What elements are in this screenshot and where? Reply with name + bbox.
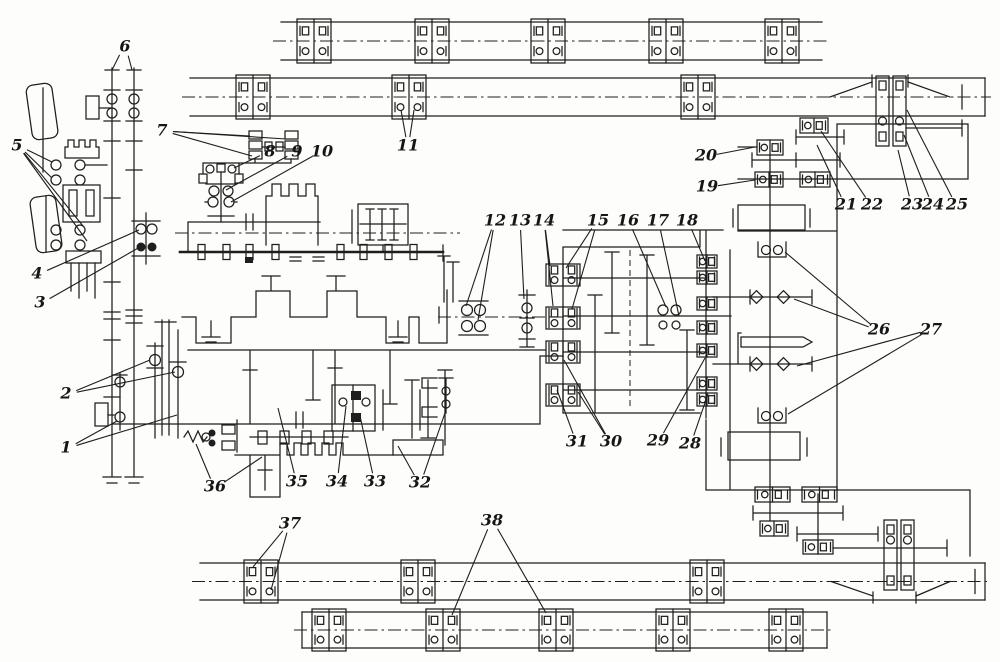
- gear-3: [137, 243, 146, 252]
- part-number: 33: [364, 472, 386, 491]
- part-number: 7: [156, 121, 167, 140]
- part-number: 8: [263, 142, 275, 161]
- part-number: 3: [34, 293, 45, 312]
- drive-unit: [86, 96, 99, 119]
- pass-through-bearing-column: [884, 520, 914, 590]
- part-number: 23: [900, 195, 923, 214]
- ball-nut-lower: [728, 432, 800, 460]
- part-label-20: 20: [694, 146, 755, 165]
- part-number: 4: [31, 264, 42, 283]
- part-number: 12: [484, 211, 506, 230]
- part-number: 6: [119, 37, 130, 56]
- bearing-block: [803, 540, 833, 554]
- scanned-kinematic-diagram-page: 1234567891011121314151617181920212223242…: [0, 0, 1000, 662]
- part-number: 21: [834, 195, 857, 214]
- part-number: 13: [509, 211, 531, 230]
- bearing-block: [802, 487, 837, 502]
- spindle-gears: [198, 245, 417, 264]
- part-label-12: 12: [466, 211, 506, 321]
- part-label-2: 2: [59, 360, 175, 403]
- part-label-32: 32: [398, 410, 446, 492]
- part-label-8: 8: [234, 142, 276, 169]
- bearing-block: [697, 271, 717, 284]
- feed-couplings: [438, 256, 563, 413]
- part-number: 29: [646, 431, 669, 450]
- part-number: 17: [647, 211, 669, 230]
- bearing-block: [546, 307, 580, 329]
- part-label-18: 18: [676, 211, 705, 262]
- bearing-block: [697, 377, 717, 390]
- part-label-11: 11: [397, 110, 419, 155]
- part-number: 36: [204, 477, 226, 496]
- part-label-14: 14: [533, 211, 555, 307]
- left-vertical-shafts: [103, 68, 160, 483]
- part-label-33: 33: [360, 416, 386, 491]
- part-number: 15: [587, 211, 609, 230]
- part-number: 25: [945, 195, 968, 214]
- part-number: 11: [397, 136, 419, 155]
- part-number: 37: [279, 514, 301, 533]
- guideway-top-outer: [273, 19, 828, 63]
- part-number: 20: [694, 146, 717, 165]
- part-number: 1: [60, 438, 71, 457]
- part-label-6: 6: [112, 37, 132, 71]
- part-number: 14: [533, 211, 555, 230]
- part-number: 38: [481, 511, 503, 530]
- part-label-31: 31: [557, 390, 588, 451]
- lower-feed-gearbox: [95, 320, 563, 497]
- bearing-block: [800, 118, 828, 133]
- part-number: 34: [326, 472, 348, 491]
- belt-plate-upper: [25, 82, 58, 140]
- part-number: 2: [59, 384, 71, 403]
- part-number: 32: [409, 473, 431, 492]
- part-number: 35: [286, 472, 308, 491]
- part-number: 19: [696, 177, 718, 196]
- guideway-bottom-inner: [192, 520, 991, 603]
- part-label-27: 27: [788, 320, 942, 415]
- bearing-block: [312, 609, 346, 651]
- bearing-block: [757, 140, 783, 155]
- guideway-top-inner: [182, 75, 991, 146]
- gear-4: [136, 224, 146, 234]
- bearing-block: [760, 521, 788, 536]
- part-label-13: 13: [509, 211, 531, 300]
- part-number: 5: [11, 136, 22, 155]
- bearing-block: [539, 609, 573, 651]
- bearing-units-layer: [546, 118, 837, 554]
- part-label-15: 15: [566, 211, 609, 310]
- ball-nut-upper: [738, 205, 805, 230]
- part-label-36: 36: [196, 444, 262, 496]
- bearing-block: [546, 384, 580, 406]
- part-number: 18: [676, 211, 698, 230]
- part-number: 10: [311, 142, 333, 161]
- part-label-37: 37: [253, 514, 301, 591]
- part-labels-layer: 1234567891011121314151617181920212223242…: [11, 37, 968, 616]
- feed-motor: [95, 403, 108, 426]
- part-number: 26: [867, 320, 890, 339]
- bearing-block: [697, 321, 717, 334]
- kinematic-diagram: 1234567891011121314151617181920212223242…: [0, 0, 1000, 662]
- part-label-23: 23: [898, 150, 923, 214]
- part-number: 27: [919, 320, 942, 339]
- part-label-5: 5: [11, 136, 87, 242]
- part-number: 22: [860, 195, 883, 214]
- part-number: 9: [291, 142, 302, 161]
- wiper-blade: [741, 337, 812, 347]
- bearing-block: [426, 609, 460, 651]
- part-number: 28: [678, 434, 701, 453]
- bearing-block: [697, 344, 717, 357]
- bearing-block: [697, 393, 717, 406]
- headstock: [175, 184, 460, 343]
- guideway-bottom-outer: [294, 609, 833, 651]
- bearing-block: [656, 609, 690, 651]
- bearing-block: [697, 255, 717, 268]
- part-number: 31: [566, 432, 588, 451]
- bearing-block: [697, 297, 717, 310]
- part-number: 30: [600, 432, 622, 451]
- pass-through-bearing-column: [876, 76, 906, 146]
- part-number: 24: [921, 195, 944, 214]
- part-number: 16: [617, 211, 639, 230]
- bearing-block: [755, 487, 790, 502]
